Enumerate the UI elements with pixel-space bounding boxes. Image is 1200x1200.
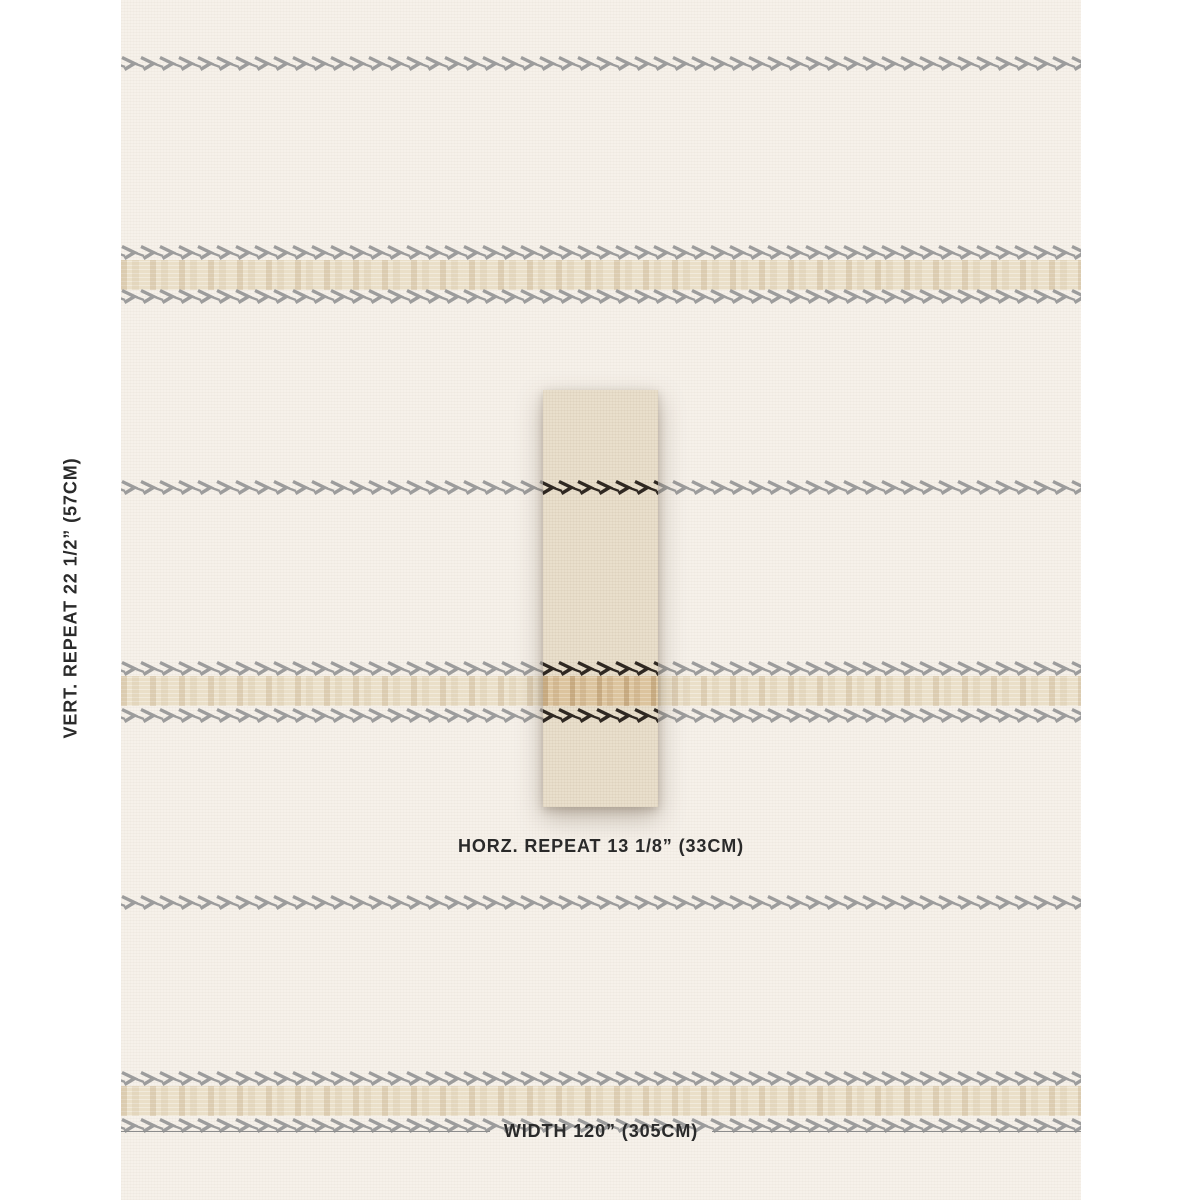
woven-band [121,1086,1081,1116]
chevron-stitch-row [121,55,1081,72]
chevron-stitch-row [121,1070,1081,1087]
chevron-stitch-row [543,707,658,724]
fabric-preview: HORZ. REPEAT 13 1/8” (33CM) WIDTH 120” (… [121,0,1081,1200]
woven-band [121,260,1081,290]
width-label: WIDTH 120” (305CM) [504,1121,698,1142]
chevron-stitch-row [543,660,658,677]
chevron-stitch-row [121,288,1081,305]
swatch-woven-band [543,676,658,706]
vertical-repeat-swatch-overlay [543,390,658,807]
vertical-repeat-label: VERT. REPEAT 22 1/2” (57CM) [61,457,82,738]
horizontal-repeat-label: HORZ. REPEAT 13 1/8” (33CM) [121,836,1081,857]
chevron-stitch-row [121,894,1081,911]
chevron-stitch-row [121,244,1081,261]
width-annotation: WIDTH 120” (305CM) [121,1121,1081,1142]
width-indicator-line-left [121,1131,490,1132]
chevron-stitch-row [543,479,658,496]
fabric-product-image: VERT. REPEAT 22 1/2” (57CM) HORZ. REPEAT… [0,0,1200,1200]
width-indicator-line-right [712,1131,1081,1132]
